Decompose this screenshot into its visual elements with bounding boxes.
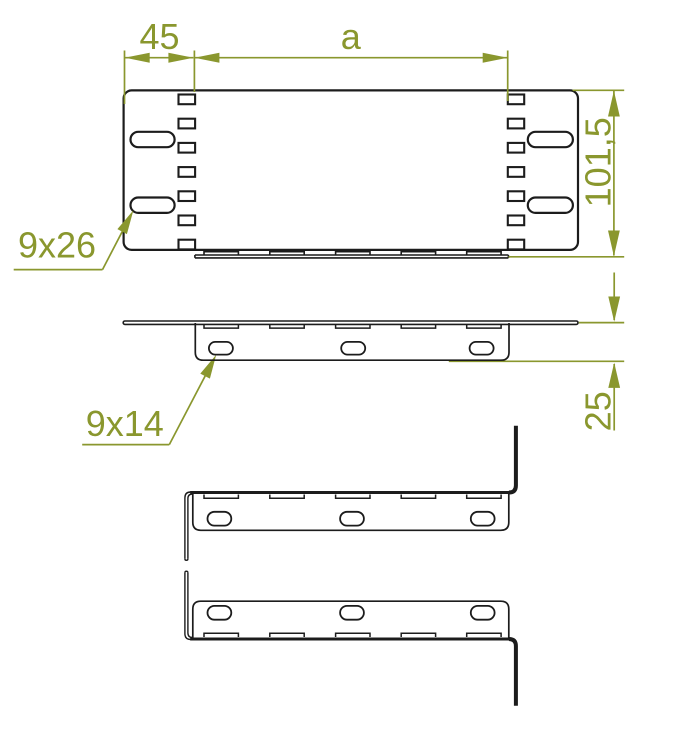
svg-text:45: 45	[139, 16, 179, 57]
svg-text:9x26: 9x26	[18, 225, 96, 266]
svg-text:101,5: 101,5	[578, 117, 619, 207]
svg-text:a: a	[341, 16, 362, 57]
svg-text:25: 25	[578, 391, 619, 431]
svg-text:9x14: 9x14	[86, 403, 164, 444]
